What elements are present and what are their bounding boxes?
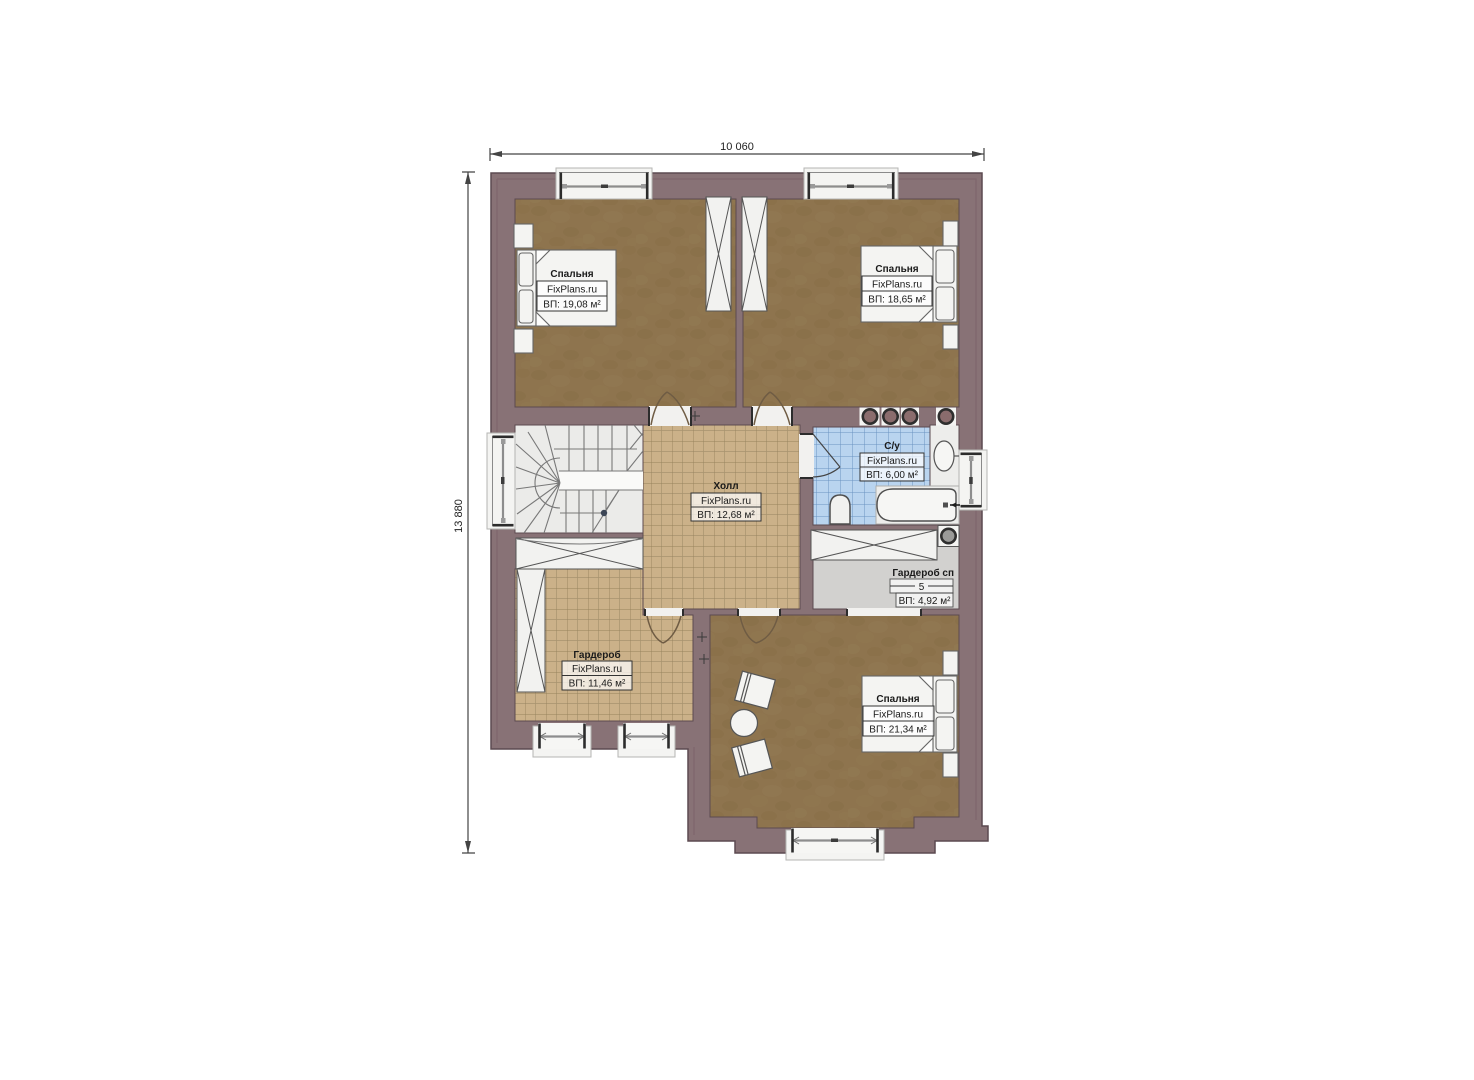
svg-text:Спальня: Спальня [550,269,593,280]
svg-text:Холл: Холл [713,481,738,492]
svg-text:Гардероб сп: Гардероб сп [892,567,954,579]
svg-text:FixPlans.ru: FixPlans.ru [872,280,922,291]
svg-text:Спальня: Спальня [876,694,919,705]
svg-text:Спальня: Спальня [875,264,918,275]
svg-text:ВП: 19,08 м²: ВП: 19,08 м² [543,300,601,311]
svg-text:ВП: 6,00 м²: ВП: 6,00 м² [866,470,919,481]
svg-text:FixPlans.ru: FixPlans.ru [867,456,917,467]
svg-text:ВП: 12,68 м²: ВП: 12,68 м² [697,510,755,521]
svg-text:FixPlans.ru: FixPlans.ru [547,285,597,296]
svg-text:10 060: 10 060 [720,141,754,153]
svg-text:ВП: 18,65 м²: ВП: 18,65 м² [868,295,926,306]
svg-text:С/у: С/у [884,441,900,452]
svg-text:Гардероб: Гардероб [573,649,620,661]
svg-text:FixPlans.ru: FixPlans.ru [873,710,923,721]
svg-text:FixPlans.ru: FixPlans.ru [701,496,751,507]
svg-text:ВП: 4,92 м²: ВП: 4,92 м² [899,596,952,607]
svg-text:FixPlans.ru: FixPlans.ru [572,664,622,675]
svg-text:13 880: 13 880 [453,499,465,533]
svg-text:5: 5 [919,582,925,593]
svg-text:ВП: 11,46 м²: ВП: 11,46 м² [569,679,626,690]
svg-text:ВП: 21,34 м²: ВП: 21,34 м² [869,725,927,736]
